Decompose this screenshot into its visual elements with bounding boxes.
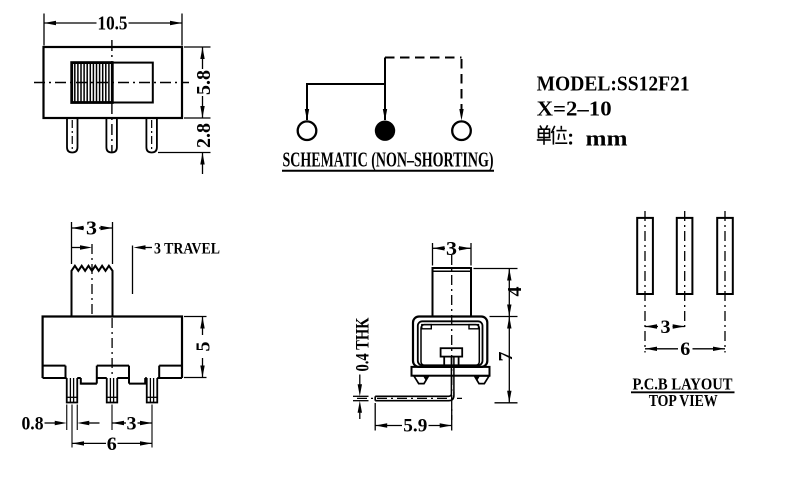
svg-text:0.4 THK: 0.4 THK bbox=[353, 317, 374, 371]
svg-text:6: 6 bbox=[107, 434, 117, 455]
svg-text:3: 3 bbox=[661, 317, 671, 338]
svg-text:5: 5 bbox=[193, 342, 215, 352]
svg-text:6: 6 bbox=[680, 339, 690, 360]
svg-text:4: 4 bbox=[504, 287, 526, 297]
svg-text:TOP VIEW: TOP VIEW bbox=[649, 391, 718, 410]
svg-text:5.9: 5.9 bbox=[403, 416, 427, 437]
svg-text:2.8: 2.8 bbox=[193, 123, 215, 148]
svg-text:3: 3 bbox=[127, 414, 137, 435]
svg-text:7: 7 bbox=[495, 352, 517, 362]
svg-text:MODEL:SS12F21: MODEL:SS12F21 bbox=[537, 72, 690, 96]
svg-text:mm: mm bbox=[586, 125, 628, 150]
svg-text:10.5: 10.5 bbox=[98, 13, 128, 35]
svg-text:X=2–10: X=2–10 bbox=[537, 97, 612, 121]
svg-text:3: 3 bbox=[86, 218, 97, 240]
svg-text:3: 3 bbox=[446, 238, 457, 260]
svg-text:SCHEMATIC (NON–SHORTING): SCHEMATIC (NON–SHORTING) bbox=[283, 148, 494, 172]
svg-text:0.8: 0.8 bbox=[22, 414, 44, 435]
svg-text:5.8: 5.8 bbox=[193, 70, 215, 95]
svg-text:3 TRAVEL: 3 TRAVEL bbox=[154, 241, 220, 258]
